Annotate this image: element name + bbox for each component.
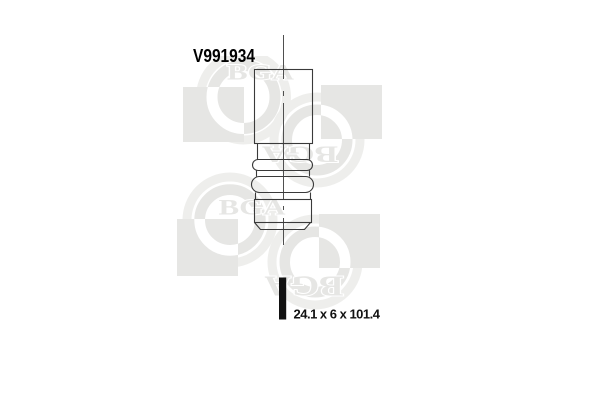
svg-text:24.1 x 6 x 101.4: 24.1 x 6 x 101.4	[294, 307, 381, 322]
svg-text:V991934: V991934	[193, 46, 255, 66]
svg-text:BGA: BGA	[261, 142, 338, 167]
svg-text:BGA: BGA	[219, 195, 286, 220]
svg-text:BGA: BGA	[264, 269, 343, 301]
